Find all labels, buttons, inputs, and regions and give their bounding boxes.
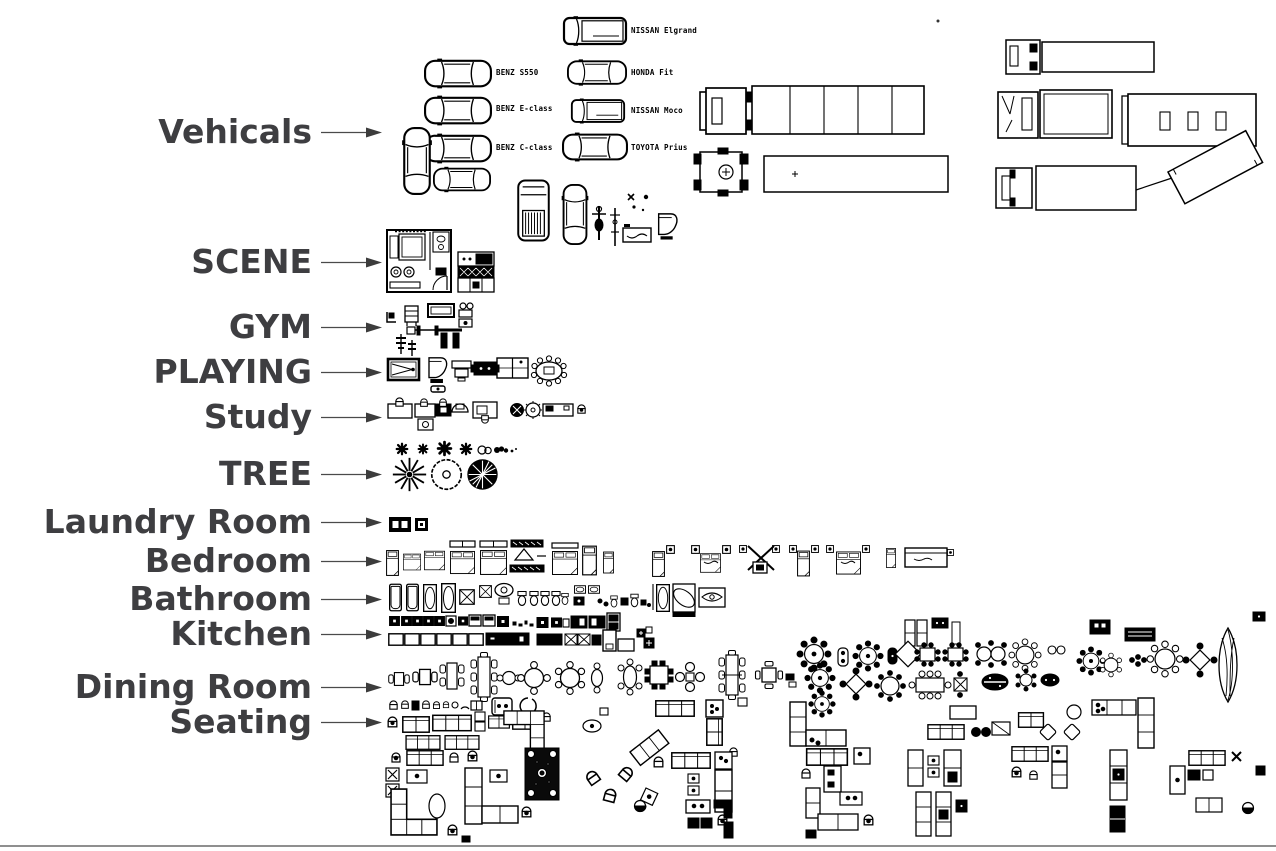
sofa-set-block-a [386,751,470,842]
scene-blocks [387,230,494,292]
playing-blocks [388,356,567,392]
round-table-block [797,637,831,671]
study-blocks [388,398,585,430]
double-round-table-block [976,641,1007,668]
stray-dot [937,20,940,23]
round-table-block [805,663,835,693]
dining-set-block [676,663,705,692]
hedge-block [494,446,517,453]
pickup-truck-vertical [518,180,549,240]
kitchen-blocks [389,613,654,651]
car-benz-e-class [425,96,491,126]
bed-block [424,551,444,570]
car-model-label: TOYOTA Prius [631,143,688,152]
lounge-chairs-block [585,730,669,812]
dining-set-block [618,659,642,695]
bed-block [798,551,810,576]
ring-table-block [1016,669,1036,691]
ring-table-block [875,671,906,702]
cabinet-elevation-block [458,252,494,292]
shrub-block [478,446,491,454]
bed-block [603,552,613,573]
rug-set-block [525,748,559,800]
semi-truck-block [700,86,924,134]
dining-set-block [592,663,603,693]
bathroom-blocks [390,584,725,617]
piano-block [659,214,677,240]
bed-block [451,551,475,573]
sofa-block [445,736,479,750]
car-model-label: BENZ E-class [496,104,553,113]
round-table-block [1147,641,1183,677]
dining-set-block [471,653,497,702]
dining-set-block [518,662,551,695]
shower-block [460,590,474,604]
van-nissan-moco [572,99,624,124]
bed-block [653,552,665,577]
scatter-marks [628,194,648,211]
sofa-set-block-e [654,752,733,838]
canopy-bed-block [510,540,546,572]
tree-plan-block [467,459,497,489]
banquet-table-block [909,671,951,699]
car-vertical-2 [562,185,589,244]
laundry-blocks [389,517,428,532]
sofa-set-block-g [908,750,967,836]
car-vertical [402,128,432,194]
cad-block-drawings: BENZ S550 BENZ E-class BENZ C-class NISS… [0,0,1276,851]
diamond-cluster-block [840,668,872,700]
sofa-block [928,725,964,739]
grand-piano-block [429,358,447,383]
car-model-label: BENZ S550 [496,68,539,77]
sofa-set-block-f [802,748,873,838]
bush-block [461,444,472,455]
corner-sofa-block [656,700,737,756]
bottom-divider [0,845,1276,847]
dining-set-block [645,661,673,689]
planter-box-block [623,224,651,242]
bed-block [403,554,420,570]
tree-plan-block [432,460,461,489]
bed-block [583,546,597,575]
van-nissan-elgrand [564,16,626,46]
barbell-block [396,334,416,356]
car-benz-s550 [425,59,491,89]
daybed-block [905,548,954,567]
dining-set-block [555,662,584,695]
pedestal-sink-block [495,584,513,605]
bush-block [397,444,408,455]
bush-block [419,445,428,454]
bush-block [438,442,451,455]
motorcycle-block [592,206,606,240]
bed-block [387,551,399,576]
corner-sofa-block [504,711,544,751]
dining-set-block [440,663,464,689]
car-toyota-prius [563,133,627,162]
flatbed-truck-block [694,148,948,196]
bathtub-block [407,584,419,611]
car-model-label: NISSAN Moco [631,106,683,115]
toilet-block [631,594,638,607]
bathtub-block [442,584,456,613]
toilet-block [541,592,549,606]
car-model-label: BENZ C-class [496,143,553,152]
seating-blocks [386,698,1265,842]
ping-pong-table-block [497,358,528,378]
car-extra [434,167,490,192]
car-model-label: NISSAN Elgrand [631,26,697,35]
dining-set-block [756,662,783,689]
gym-blocks [387,303,473,356]
round-table-block [1100,653,1121,677]
toilet-block [530,592,538,606]
vehicles-blocks: BENZ S550 BENZ E-class BENZ C-class NISS… [402,16,1262,246]
billiard-table-block [388,359,419,380]
tree-plan-block [393,458,426,491]
vanity-sink-block [699,588,725,607]
mahjong-table-block [471,362,499,375]
truck-with-trailer-block [998,90,1256,146]
sink-block [589,586,600,594]
leaf-table-block [1219,628,1237,702]
loveseat-block [1019,713,1044,727]
bed-block [886,548,895,567]
round-table-block [809,691,835,717]
dining-set-block [413,669,437,684]
round-table-block [853,641,883,671]
sofa-set-block-b [465,751,531,824]
washer-block [389,517,411,532]
conference-table-block [531,356,566,386]
diamond-table-block [1183,643,1217,677]
toilet-block [552,592,560,606]
sofa-set-block-j [1170,751,1265,814]
box-truck-block [1006,40,1154,74]
square-table-block [943,643,968,666]
sofa-block [433,715,471,730]
bed-block [837,552,861,574]
bicycle-block [610,208,620,246]
x-table-block [954,672,967,698]
bed-block [553,551,578,574]
toilet-block [518,592,526,606]
sofa-block [406,736,440,750]
dining-set-block [389,673,410,686]
bathtub-block [390,584,402,611]
bathtub-block [424,585,437,612]
canopy-bed-block [740,546,780,573]
shower-block [480,586,492,598]
car-benz-c-class [425,134,491,164]
table-block [452,361,471,381]
car-model-label: HONDA Fit [631,68,673,77]
tree-blocks [393,442,517,491]
oval-table-block [982,674,1008,690]
toilet-block [611,596,618,607]
sofa-set-block-h [1012,746,1067,788]
bathtub-block [657,585,670,612]
car-honda-fit [568,59,626,85]
sofa-set-block-i [1110,750,1127,832]
bed-block [481,551,507,575]
loveseat-block [403,717,429,732]
corner-tub-block [670,584,698,617]
bedroom-blocks [387,540,954,576]
sink-block [575,586,586,594]
toilet-block [562,593,569,604]
sofa-with-chaise-block [1092,700,1136,715]
cad-blocks-sheet: Vehicals SCENE GYM PLAYING Study TREE La… [0,0,1276,851]
hotel-room-plan-block [387,230,451,292]
round-table-block [1009,639,1041,671]
